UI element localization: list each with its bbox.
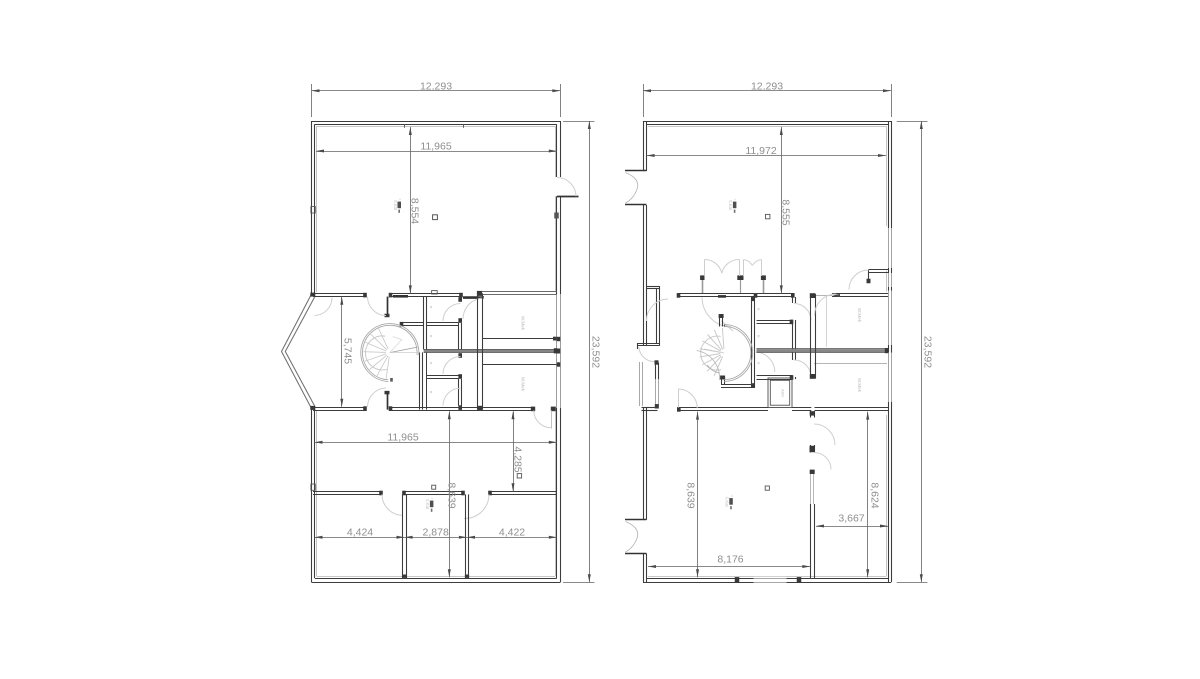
svg-text:×: × [429, 361, 432, 367]
svg-text:4,285: 4,285 [511, 446, 523, 472]
svg-text:S.Kat: S.Kat [728, 200, 733, 211]
svg-text:8,639: 8,639 [685, 482, 697, 508]
svg-text:×: × [429, 390, 432, 396]
svg-text:2,878: 2,878 [423, 526, 449, 538]
svg-text:×: × [757, 361, 760, 367]
svg-text:23,592: 23,592 [921, 336, 933, 368]
svg-text:3,667: 3,667 [838, 513, 864, 525]
svg-text:8,555: 8,555 [779, 199, 791, 225]
svg-text:4,424: 4,424 [347, 526, 373, 538]
svg-text:S.Kat: S.Kat [725, 496, 730, 507]
svg-text:12,293: 12,293 [751, 80, 783, 92]
svg-text:=: = [398, 198, 402, 200]
svg-text:11,965: 11,965 [420, 141, 451, 153]
svg-text:W.Mek: W.Mek [521, 316, 526, 331]
svg-text:W.Mek: W.Mek [857, 308, 862, 323]
svg-text:23,592: 23,592 [589, 336, 601, 368]
svg-text:11,965: 11,965 [387, 432, 418, 444]
svg-text:×: × [429, 334, 432, 340]
svg-text:W.Mek: W.Mek [521, 377, 526, 392]
svg-text:4,422: 4,422 [499, 526, 525, 538]
svg-text:11,972: 11,972 [745, 145, 776, 157]
svg-text:=: = [733, 198, 737, 200]
svg-text:8,639: 8,639 [446, 482, 458, 508]
svg-text:8,176: 8,176 [717, 554, 743, 566]
svg-text:8,624: 8,624 [868, 482, 880, 508]
svg-text:=: = [729, 495, 733, 497]
svg-text:×: × [429, 305, 432, 311]
svg-text:×: × [757, 334, 760, 340]
svg-text:5,745: 5,745 [342, 338, 354, 364]
svg-text:S.Kat: S.Kat [393, 200, 398, 211]
svg-text:8,554: 8,554 [409, 198, 421, 224]
svg-text:W.Mek: W.Mek [857, 378, 862, 393]
svg-text:12,293: 12,293 [420, 80, 452, 92]
svg-text:×: × [757, 307, 760, 313]
svg-text:S.Kat: S.Kat [425, 499, 430, 510]
svg-text:ASR: ASR [781, 389, 785, 397]
svg-text:=: = [430, 497, 434, 499]
